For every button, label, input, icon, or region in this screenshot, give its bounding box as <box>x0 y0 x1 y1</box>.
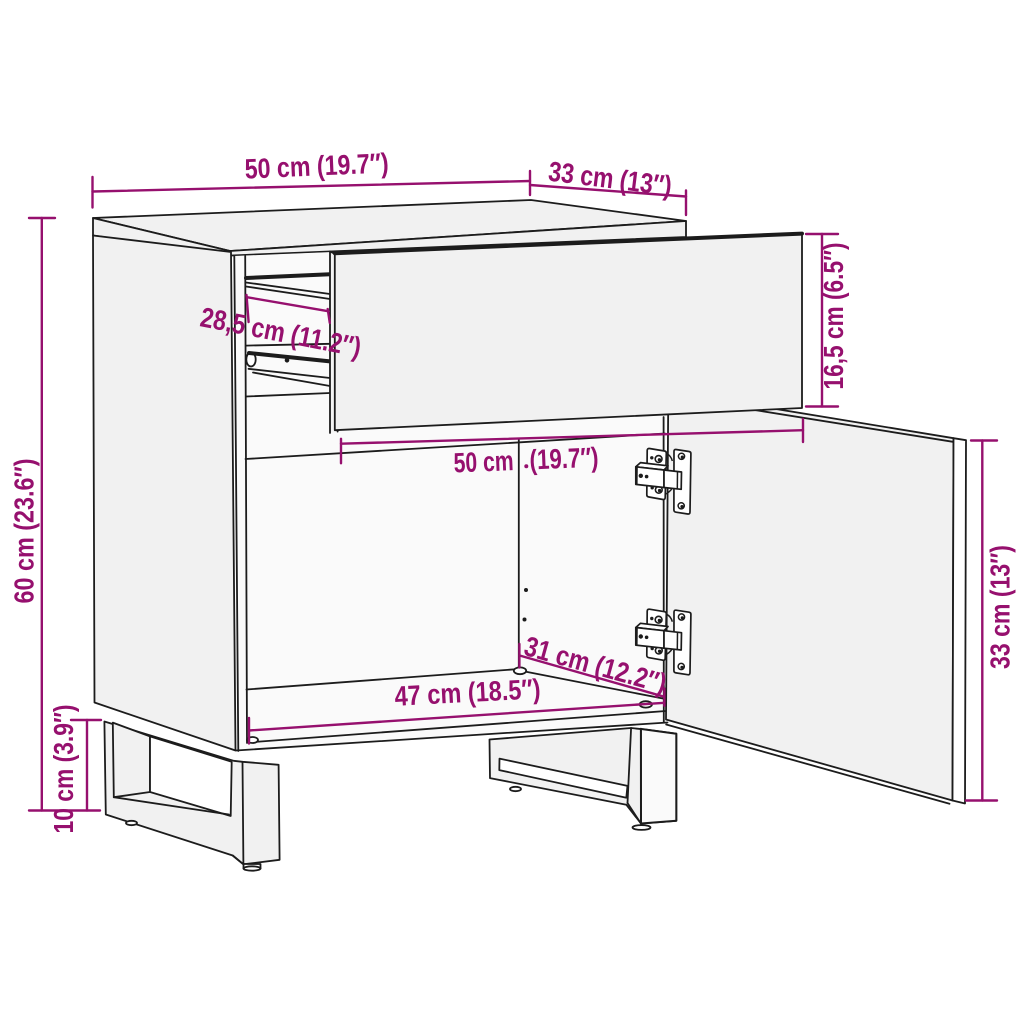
svg-text:16,5 cm (6.5″): 16,5 cm (6.5″) <box>818 243 849 390</box>
svg-text:33 cm (13″): 33 cm (13″) <box>985 545 1016 669</box>
svg-text:60 cm (23.6″): 60 cm (23.6″) <box>9 459 40 604</box>
svg-text:50 cm: 50 cm <box>453 445 514 478</box>
svg-text:10 cm (3.9″): 10 cm (3.9″) <box>48 705 79 834</box>
svg-text:50 cm (19.7″): 50 cm (19.7″) <box>244 147 389 184</box>
svg-text:(19.7″): (19.7″) <box>529 442 599 476</box>
